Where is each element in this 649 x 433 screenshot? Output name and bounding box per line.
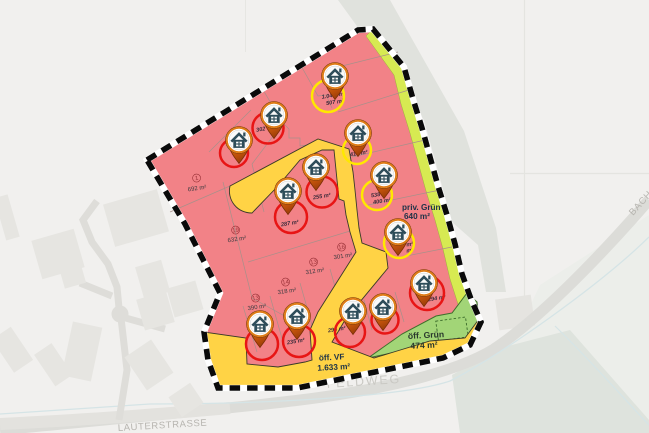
svg-text:640 m²: 640 m² <box>404 212 430 221</box>
svg-text:priv. Grün: priv. Grün <box>402 203 441 212</box>
svg-text:öff. VF: öff. VF <box>319 352 345 362</box>
svg-text:1.633 m²: 1.633 m² <box>317 362 350 373</box>
svg-text:474 m²: 474 m² <box>410 339 438 350</box>
